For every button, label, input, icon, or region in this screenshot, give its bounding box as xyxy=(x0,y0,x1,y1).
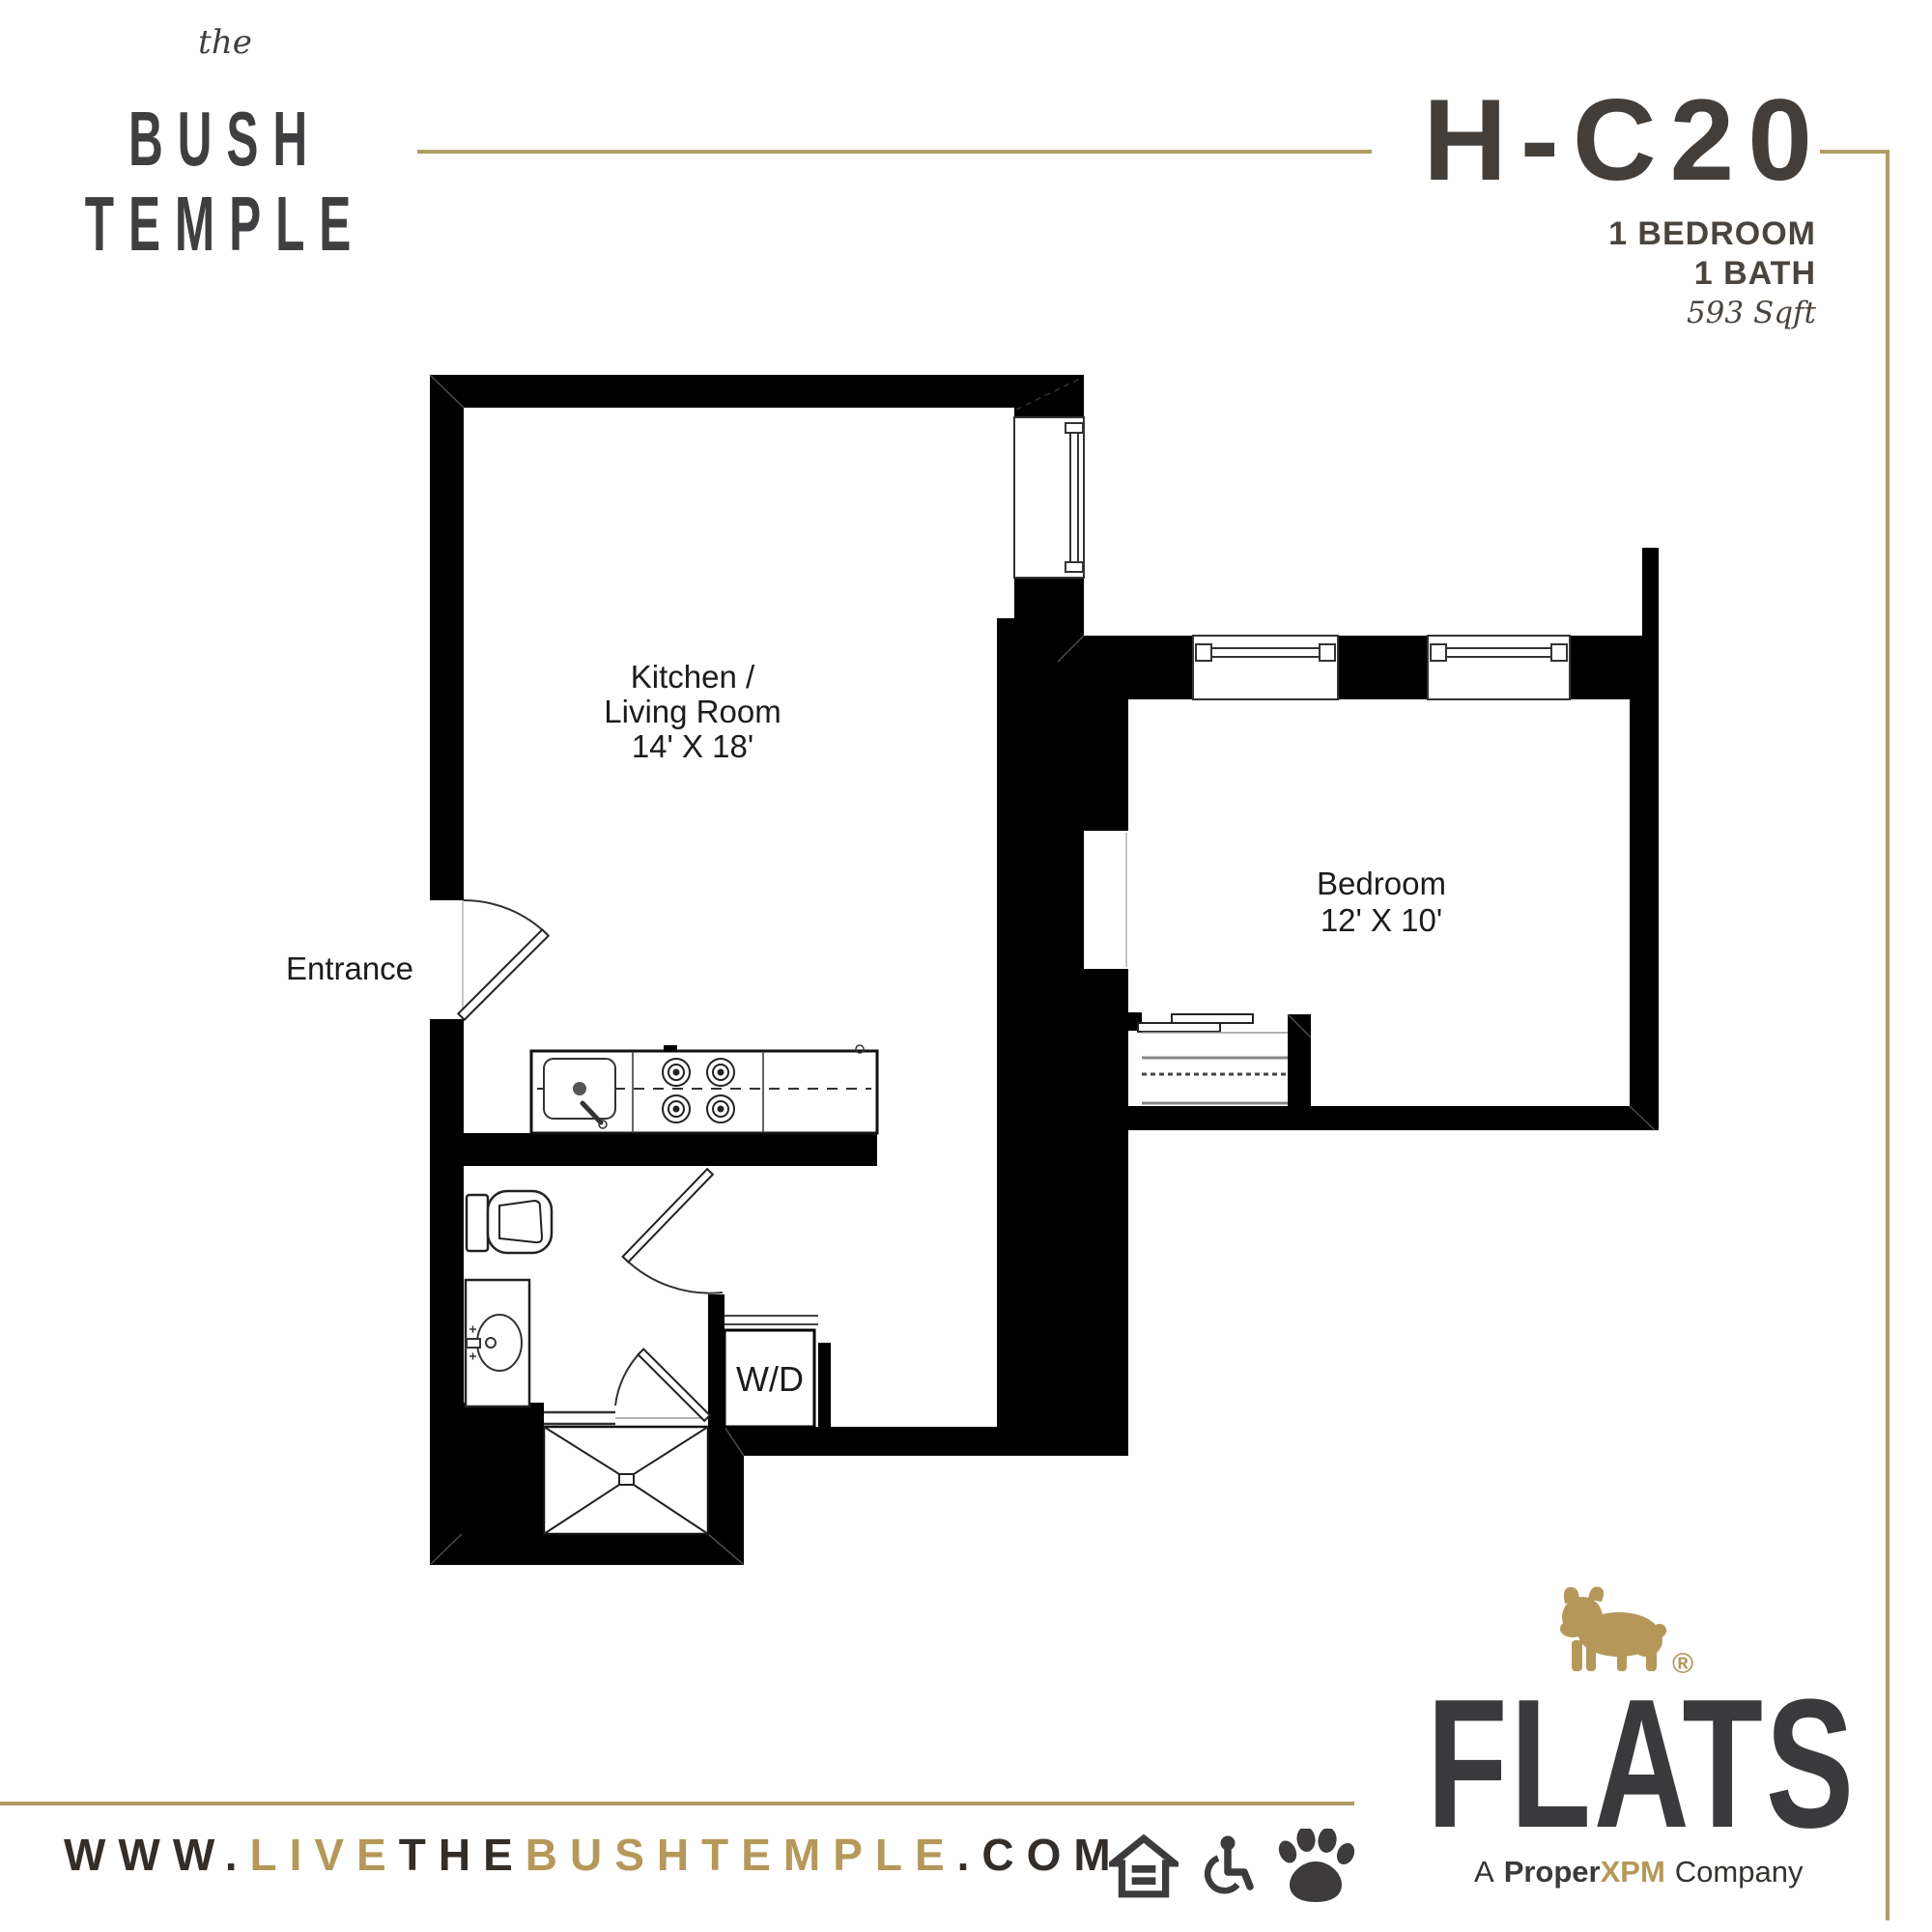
website-com: .COM xyxy=(957,1830,1123,1880)
living-room-window xyxy=(1014,417,1084,578)
bedroom-label-dims: 12' X 10' xyxy=(1321,902,1442,938)
logo-tagline: AProperXPMCompany xyxy=(1474,1855,1803,1889)
kitchen-label-line2: Living Room xyxy=(604,694,781,729)
website-bushtemple: BUSHTEMPLE xyxy=(526,1830,957,1880)
website-url: WWW.LIVETHEBUSHTEMPLE.COM xyxy=(64,1829,1123,1881)
website-www: WWW. xyxy=(64,1830,250,1880)
bedroom-window-1 xyxy=(1193,636,1338,699)
tagline-company: Company xyxy=(1675,1855,1804,1889)
equal-housing-icon xyxy=(1109,1833,1179,1899)
bedroom-window-2 xyxy=(1428,636,1570,699)
bedroom-closet xyxy=(1138,1014,1288,1103)
bathroom-sink xyxy=(466,1280,529,1406)
tagline-xpm: XPM xyxy=(1601,1855,1665,1889)
flyer-page: the BUSHTEMPLE H-C20 1 BEDROOM 1 BATH 59… xyxy=(0,0,1932,1932)
bathroom-door xyxy=(623,1169,723,1293)
website-live: LIVE xyxy=(250,1830,399,1880)
accessibility-icon xyxy=(1196,1834,1258,1898)
tagline-a: A xyxy=(1474,1855,1494,1889)
entrance-door xyxy=(458,900,548,1020)
kitchen-label-dims: 14' X 18' xyxy=(632,728,753,764)
kitchen-label-line1: Kitchen / xyxy=(631,659,755,695)
toilet xyxy=(467,1191,552,1253)
kitchen-counter xyxy=(531,1045,877,1133)
bedroom-label: Bedroom xyxy=(1317,866,1446,901)
kitchen-sink xyxy=(544,1059,615,1128)
tagline-proper: Proper xyxy=(1504,1855,1601,1889)
flats-logo-text: FLATS xyxy=(1427,1672,1857,1856)
hall-door xyxy=(544,1350,710,1424)
pet-friendly-icon xyxy=(1275,1829,1356,1904)
shower xyxy=(544,1427,708,1534)
entrance-label: Entrance xyxy=(286,951,413,986)
gold-rule-bottom xyxy=(0,1802,1354,1805)
website-the: THE xyxy=(399,1830,526,1880)
washer-dryer-label: W/D xyxy=(736,1359,804,1399)
amenity-icons xyxy=(1109,1826,1370,1907)
